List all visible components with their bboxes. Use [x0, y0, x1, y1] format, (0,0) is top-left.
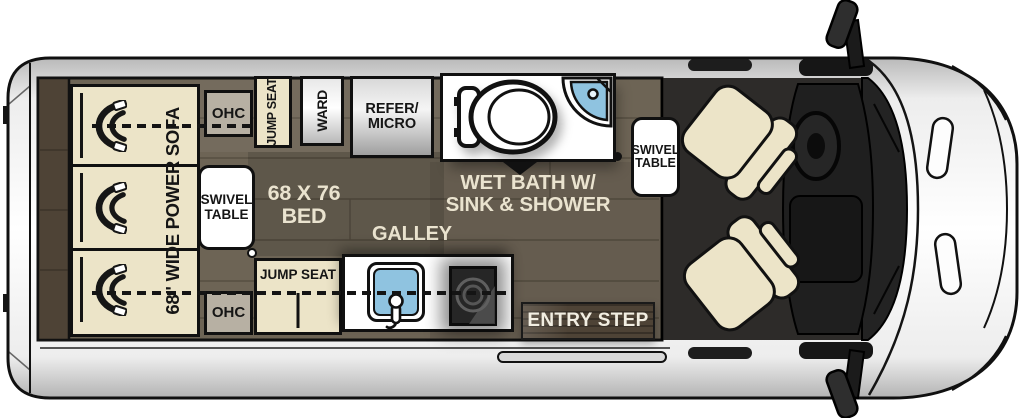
bed-label: 68 X 76 BED — [252, 182, 356, 228]
steering-hub — [807, 133, 825, 159]
ohc-top-cabinet: OHC — [204, 90, 253, 137]
wet-bath-label: WET BATH W/ SINK & SHOWER — [423, 172, 633, 216]
swivel-table-left-label: TABLE — [205, 208, 249, 222]
center-console — [790, 196, 862, 282]
swivel-table-right: SWIVEL TABLE — [631, 117, 680, 197]
ohc-bottom-cabinet: OHC — [204, 291, 253, 335]
seatbelt-icon — [89, 182, 127, 234]
bed-dashline-bottom — [92, 291, 512, 295]
refer-micro-label: MICRO — [368, 117, 416, 132]
faucet-icon — [384, 293, 408, 333]
refer-micro-cabinet: REFER/ MICRO — [350, 76, 434, 158]
ohc-bottom-label: OHC — [212, 305, 245, 321]
seatbelt-icon — [89, 264, 127, 316]
corner-sink-icon — [553, 76, 613, 132]
sliding-door-track — [498, 352, 666, 362]
power-sofa: 68" WIDE POWER SOFA — [70, 84, 200, 337]
bed-dashline-top — [92, 124, 252, 128]
taillight-icon — [3, 294, 9, 312]
rv-floorplan: 68" WIDE POWER SOFA OHC OHC SWIVEL TABLE… — [0, 0, 1024, 418]
toilet-icon — [447, 78, 567, 158]
wardrobe-label: WARD — [315, 90, 330, 132]
stove-icon — [449, 266, 497, 326]
taillight-icon — [3, 106, 9, 124]
swivel-table-left: SWIVEL TABLE — [198, 165, 255, 250]
swivel-table-left-label: SWIVEL — [201, 193, 253, 207]
roof-trim — [688, 59, 752, 71]
entry-step: ENTRY STEP — [521, 302, 655, 340]
refer-micro-label: REFER/ — [365, 102, 418, 117]
jump-seat-top: JUMP SEAT — [254, 76, 292, 148]
galley-label: GALLEY — [362, 224, 462, 246]
table-pivot-icon — [613, 152, 622, 161]
wardrobe: WARD — [300, 76, 344, 146]
ohc-top-label: OHC — [212, 106, 245, 122]
wet-bath — [440, 73, 616, 162]
jump-seat-bottom: JUMP SEAT — [254, 258, 342, 335]
jump-seat-top-label: JUMP SEAT — [266, 78, 279, 146]
cab-step — [688, 347, 752, 359]
rear-storage — [38, 78, 69, 340]
swivel-table-right-label: TABLE — [635, 157, 676, 170]
table-pivot-icon — [247, 248, 257, 258]
entry-step-label: ENTRY STEP — [527, 311, 648, 331]
jump-seat-bottom-label: JUMP SEAT — [260, 268, 336, 282]
